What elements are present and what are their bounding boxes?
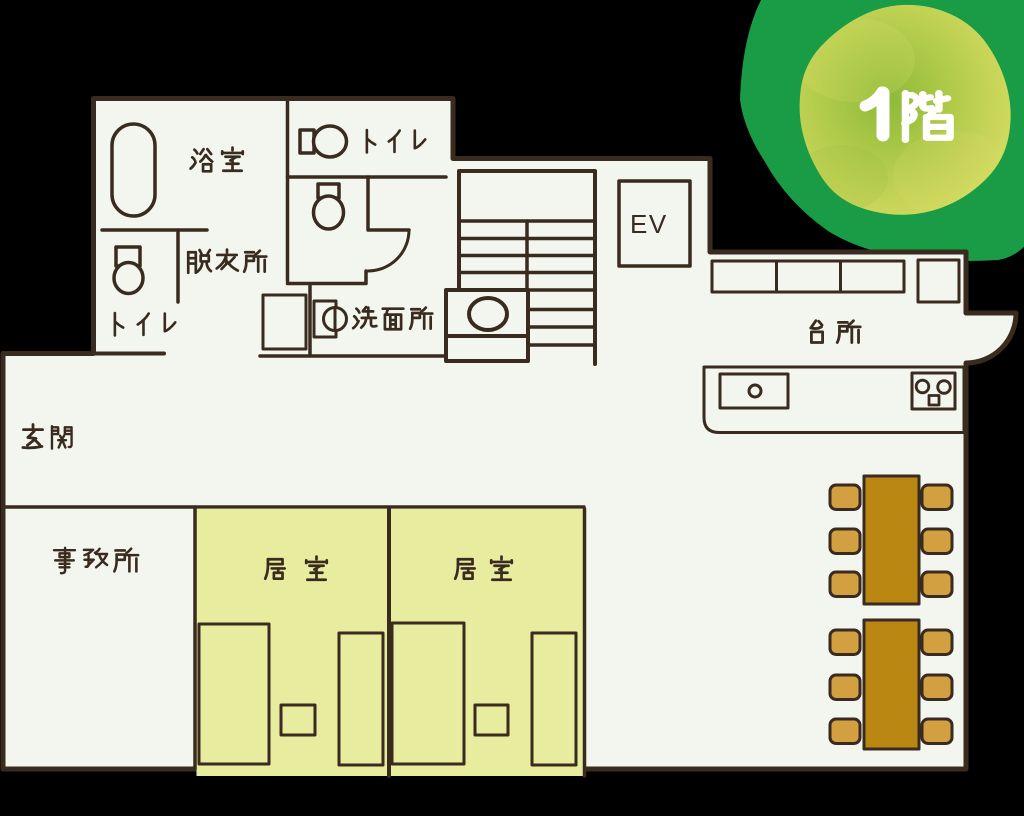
svg-text:EV: EV bbox=[630, 209, 668, 239]
